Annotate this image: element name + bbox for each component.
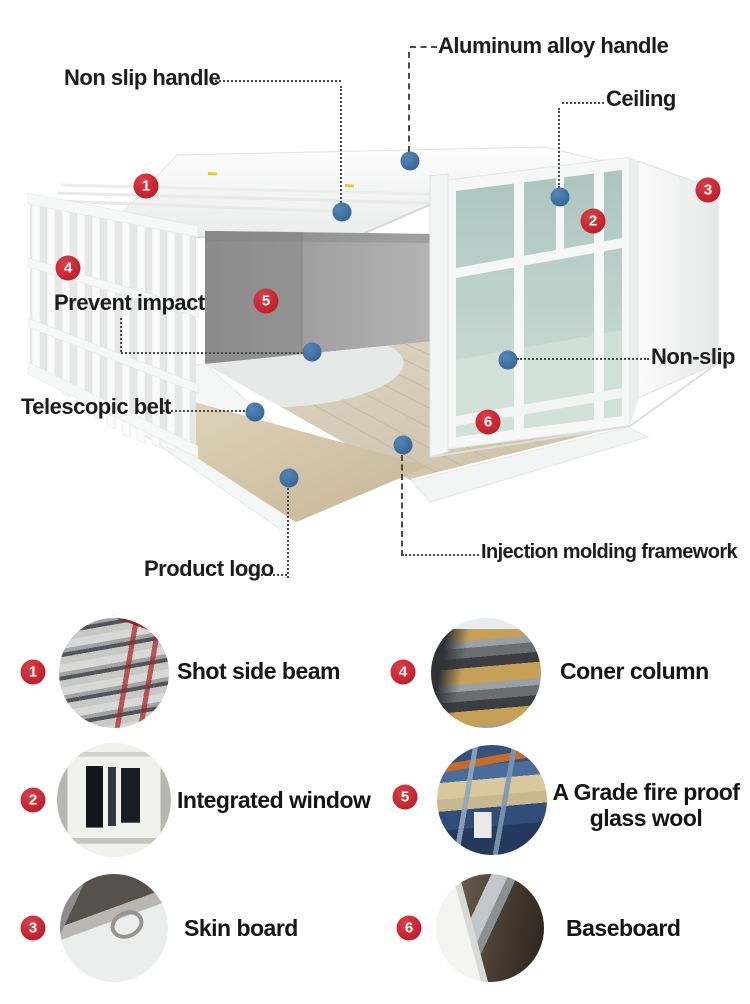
callout-label-product-logo: Product logo bbox=[144, 557, 274, 581]
callout-label-non-slip-handle: Non slip handle bbox=[64, 66, 220, 90]
callout-dot-framework bbox=[394, 436, 413, 455]
callout-line-prevent-impact-h bbox=[121, 352, 303, 354]
callout-label-prevent-impact: Prevent impact bbox=[54, 291, 205, 315]
callout-dot-ceiling bbox=[551, 188, 570, 207]
callout-line-aluminum-v bbox=[408, 52, 410, 152]
callout-dot-non-slip-handle bbox=[333, 203, 352, 222]
legend-label-baseboard: Baseboard bbox=[566, 915, 680, 942]
legend-label-glass-wool: A Grade fire proof glass wool bbox=[546, 779, 746, 831]
callout-line-nonslip-h bbox=[517, 358, 649, 360]
callout-label-ceiling: Ceiling bbox=[606, 87, 676, 111]
legend-badge-2: 2 bbox=[21, 788, 46, 813]
legend-label-glass-wool-line1: A Grade fire proof bbox=[546, 779, 746, 805]
callout-dot-aluminum-alloy-handle bbox=[401, 152, 420, 171]
callout-label-aluminum-alloy-handle: Aluminum alloy handle bbox=[438, 34, 668, 58]
callout-line-nonslip-handle-v bbox=[340, 86, 342, 203]
container-house-infographic: 1 2 3 4 5 6 Aluminum alloy handle Non sl… bbox=[0, 0, 750, 1004]
legend-badge-1: 1 bbox=[21, 660, 46, 685]
marker-6: 6 bbox=[476, 410, 501, 435]
callout-label-injection-molding-framework: Injection molding framework bbox=[481, 541, 737, 563]
callout-line-product-logo-v bbox=[287, 488, 289, 578]
callout-line-framework-h bbox=[402, 554, 479, 556]
legend-photo-shot-side-beam bbox=[59, 618, 169, 728]
callout-line-framework-v bbox=[401, 455, 403, 556]
marker-1: 1 bbox=[134, 174, 159, 199]
legend-badge-4: 4 bbox=[391, 660, 416, 685]
legend-badge-3: 3 bbox=[21, 916, 46, 941]
legend-photo-integrated-window bbox=[57, 743, 171, 857]
marker-2: 2 bbox=[581, 209, 606, 234]
legend-badge-6: 6 bbox=[397, 916, 422, 941]
callout-line-ceiling-h bbox=[562, 102, 604, 104]
legend-badge-5: 5 bbox=[393, 785, 418, 810]
legend-photo-skin-board bbox=[60, 874, 168, 982]
marker-4: 4 bbox=[56, 256, 81, 281]
marker-3: 3 bbox=[696, 178, 721, 203]
callout-line-prevent-impact-v bbox=[120, 318, 122, 352]
glass-door-unit bbox=[430, 157, 630, 457]
legend-label-shot-side-beam: Shot side beam bbox=[177, 658, 340, 685]
legend-label-coner-column: Coner column bbox=[560, 658, 709, 685]
callout-line-telescopic-h bbox=[160, 410, 245, 412]
legend-photo-baseboard bbox=[436, 874, 544, 982]
legend-label-glass-wool-line2: glass wool bbox=[546, 805, 746, 831]
callout-dot-prevent-impact bbox=[303, 343, 322, 362]
callout-dot-product-logo bbox=[280, 469, 299, 488]
callout-dot-non-slip bbox=[499, 351, 518, 370]
marker-5: 5 bbox=[254, 289, 279, 314]
callout-dot-telescopic-belt bbox=[246, 403, 265, 422]
callout-line-aluminum-h bbox=[410, 46, 437, 48]
callout-label-non-slip: Non-slip bbox=[651, 345, 735, 369]
callout-line-ceiling-v bbox=[558, 108, 560, 188]
interior-wall bbox=[205, 231, 435, 364]
legend-photo-glass-wool bbox=[437, 745, 547, 855]
callout-line-nonslip-handle-h bbox=[211, 80, 341, 82]
legend-label-integrated-window: Integrated window bbox=[177, 787, 370, 814]
callout-label-telescopic-belt: Telescopic belt bbox=[21, 395, 171, 419]
legend-photo-coner-column bbox=[431, 618, 541, 728]
legend-label-skin-board: Skin board bbox=[184, 915, 298, 942]
